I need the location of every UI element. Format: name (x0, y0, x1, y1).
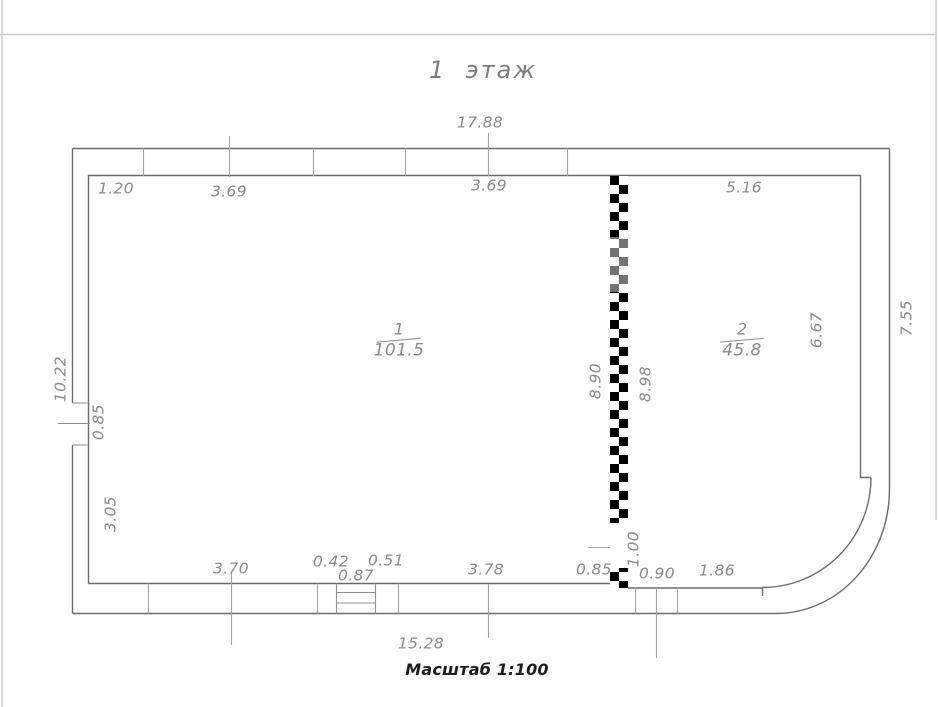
dim-bottom-seg-2: 0.87 (338, 568, 374, 584)
dim-bottom-seg-3: 0.51 (368, 553, 404, 569)
dim-bottom-seg-4: 3.78 (468, 562, 504, 578)
page-title: 1 этаж (429, 58, 537, 82)
sheet-border (0, 0, 936, 707)
room-1-label: 1 101.5 (374, 322, 425, 361)
rounded-corner-outer-wall (73, 149, 890, 614)
bottom-window (337, 584, 376, 614)
dim-left-window: 0.85 (91, 404, 107, 440)
outer-wall (73, 149, 890, 614)
dim-right-room2: 6.67 (809, 312, 825, 348)
scale-note: Масштаб 1:100 (405, 662, 549, 678)
room-2-area: 45.8 (722, 342, 761, 360)
floorplan-sheet: 1 этаж Масштаб 1:100 17.88 1.20 3.69 3.6… (0, 0, 938, 707)
floorplan-drawing (0, 0, 938, 707)
partition-checker-wall (610, 176, 628, 588)
room-1-area: 101.5 (374, 342, 425, 360)
dim-bottom-overall: 15.28 (398, 636, 444, 652)
dim-bottom-seg-0: 3.70 (213, 561, 249, 577)
dim-top-seg-0: 1.20 (98, 181, 134, 197)
dim-partition-left: 8.90 (588, 363, 604, 399)
dim-left-overall: 10.22 (53, 356, 69, 402)
dim-partition-right: 8.98 (638, 366, 654, 402)
dim-bottom-seg-6: 0.90 (639, 566, 675, 582)
room-1-number: 1 (394, 322, 404, 339)
left-window (58, 403, 90, 445)
dim-left-lower: 3.05 (103, 496, 119, 532)
dim-top-seg-3: 5.16 (726, 180, 762, 196)
dim-bottom-seg-5: 0.85 (576, 562, 612, 578)
dim-top-seg-2: 3.69 (471, 178, 507, 194)
room-2-number: 2 (737, 322, 747, 339)
dim-top-seg-1: 3.69 (211, 184, 247, 200)
dim-top-overall: 17.88 (457, 115, 503, 131)
dim-right-overall: 7.55 (899, 300, 915, 336)
dim-partition-door: 1.00 (626, 531, 642, 567)
dim-bottom-seg-7: 1.86 (699, 563, 735, 579)
inner-wall (89, 176, 872, 597)
room-2-label: 2 45.8 (720, 322, 764, 361)
